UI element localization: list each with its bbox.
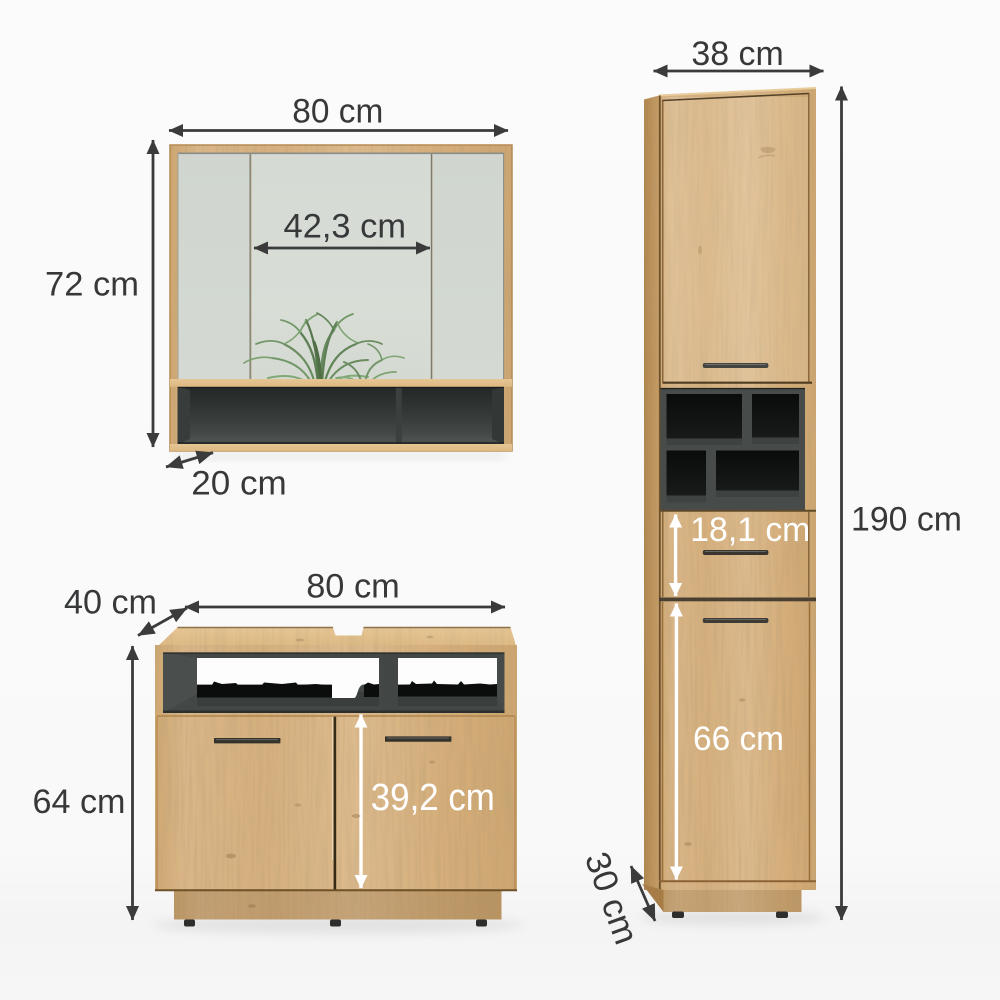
- svg-text:72 cm: 72 cm: [45, 266, 139, 304]
- svg-text:39,2 cm: 39,2 cm: [371, 777, 495, 819]
- svg-text:20 cm: 20 cm: [191, 465, 287, 503]
- svg-text:80 cm: 80 cm: [306, 568, 400, 606]
- svg-text:40 cm: 40 cm: [64, 584, 157, 622]
- svg-text:80 cm: 80 cm: [292, 93, 383, 131]
- svg-text:38 cm: 38 cm: [691, 35, 783, 73]
- svg-text:18,1 cm: 18,1 cm: [690, 511, 810, 549]
- svg-text:66 cm: 66 cm: [693, 720, 784, 758]
- svg-text:190 cm: 190 cm: [851, 501, 962, 539]
- svg-text:42,3 cm: 42,3 cm: [284, 207, 407, 245]
- svg-text:64 cm: 64 cm: [33, 783, 126, 821]
